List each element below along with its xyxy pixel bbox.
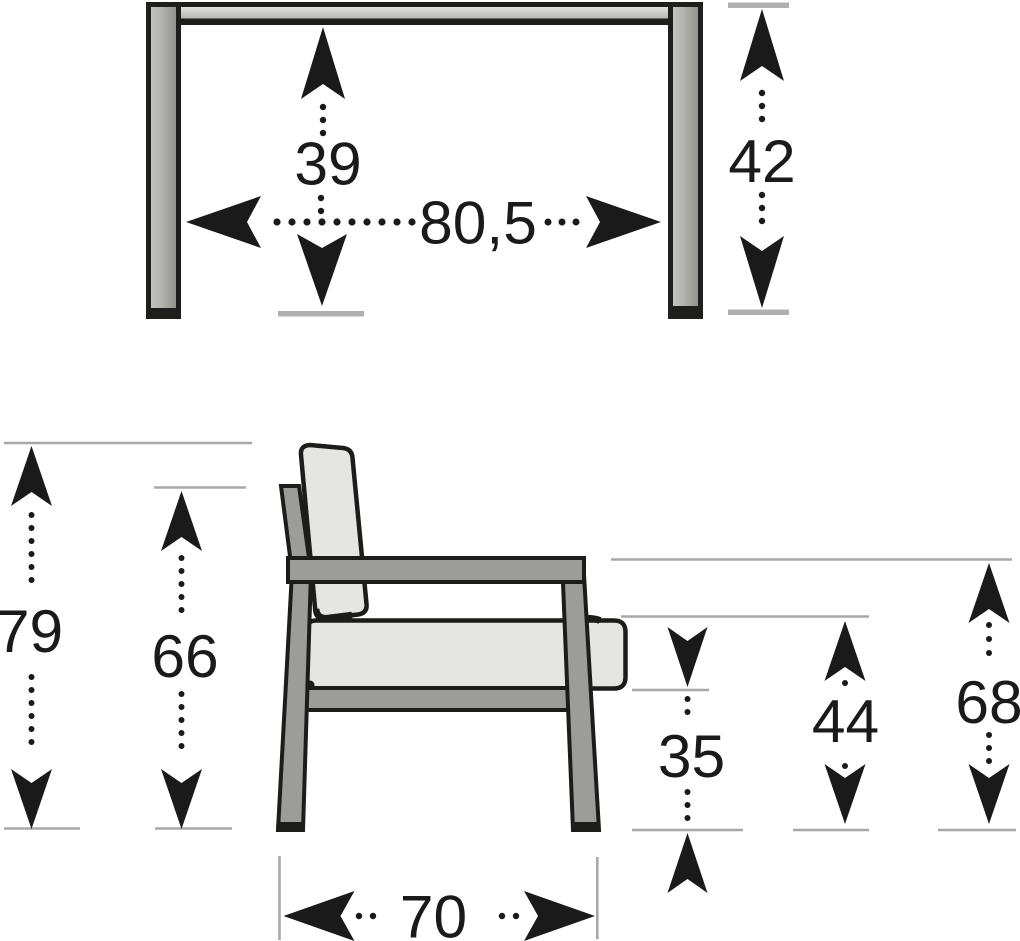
svg-text:39: 39 xyxy=(294,130,361,198)
svg-text:35: 35 xyxy=(658,722,725,790)
svg-text:42: 42 xyxy=(728,127,795,195)
svg-text:79: 79 xyxy=(0,597,63,665)
svg-text:66: 66 xyxy=(151,622,218,690)
svg-text:68: 68 xyxy=(955,668,1020,736)
svg-text:70: 70 xyxy=(400,883,467,941)
svg-text:80,5: 80,5 xyxy=(419,189,537,257)
svg-text:44: 44 xyxy=(812,687,879,755)
